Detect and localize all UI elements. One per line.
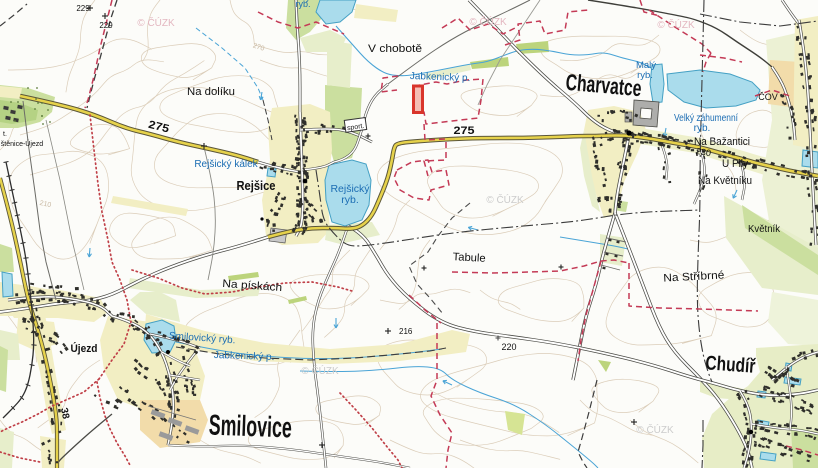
svg-text:229: 229 — [76, 4, 90, 13]
svg-text:ryb.: ryb. — [694, 123, 711, 134]
svg-text:t.: t. — [3, 131, 7, 138]
svg-text:Rejšický kálek: Rejšický kálek — [194, 159, 258, 170]
svg-text:220: 220 — [501, 342, 516, 352]
svg-text:© ČÚZK: © ČÚZK — [469, 15, 507, 28]
svg-text:Smilovice: Smilovice — [208, 410, 292, 445]
svg-text:nický: nický — [290, 0, 311, 2]
svg-text:© ČÚZK: © ČÚZK — [137, 16, 175, 29]
svg-text:Jabkenický p.: Jabkenický p. — [410, 71, 471, 84]
svg-text:Újezd: Újezd — [71, 342, 98, 355]
svg-text:Na Květníku: Na Květníku — [698, 175, 752, 187]
svg-text:štěnice-Újezd: štěnice-Újezd — [1, 139, 44, 148]
svg-text:Jabkenický p.: Jabkenický p. — [214, 350, 275, 363]
svg-text:Tabule: Tabule — [452, 251, 486, 265]
svg-text:V chobotě: V chobotě — [368, 43, 422, 55]
svg-text:ryb.: ryb. — [637, 70, 653, 81]
svg-text:© ČÚZK: © ČÚZK — [486, 193, 524, 206]
svg-text:© ČÚZK: © ČÚZK — [657, 18, 695, 31]
svg-text:Rejšice: Rejšice — [237, 178, 276, 193]
svg-text:216: 216 — [399, 327, 413, 336]
svg-text:© ČÚZK: © ČÚZK — [301, 364, 339, 377]
svg-text:Chudíř: Chudíř — [705, 352, 757, 377]
svg-text:U Pily: U Pily — [722, 158, 748, 170]
svg-text:Na dolíku: Na dolíku — [187, 86, 235, 98]
svg-text:275: 275 — [454, 125, 475, 137]
svg-text:ČOV: ČOV — [758, 92, 778, 102]
svg-text:© ČÚZK: © ČÚZK — [636, 423, 674, 436]
svg-text:ryb.: ryb. — [341, 194, 359, 206]
svg-text:Květník: Květník — [748, 224, 781, 235]
svg-text:229: 229 — [99, 21, 113, 30]
